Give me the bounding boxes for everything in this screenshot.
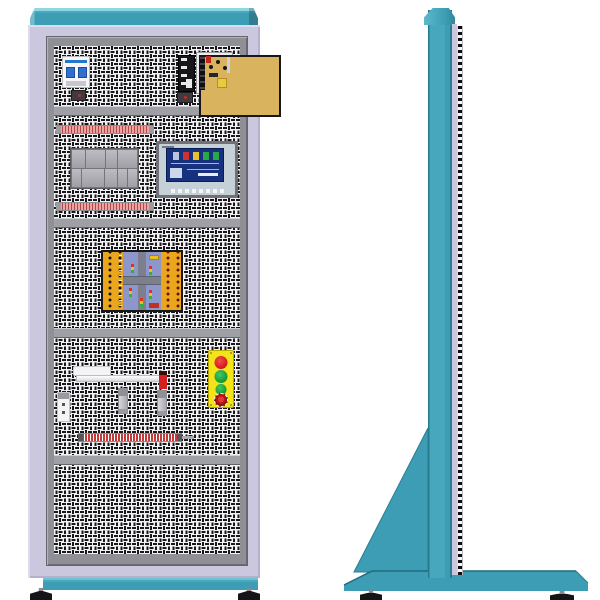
plc-module-row (72, 169, 137, 187)
hmi-tank-green (203, 152, 209, 160)
relay-label (186, 79, 192, 88)
sensor-head (119, 389, 127, 396)
sensor-base (119, 409, 127, 413)
plc-module (118, 169, 127, 187)
board-road-horizontal (123, 276, 161, 285)
hmi-screen (166, 148, 224, 182)
traffic-trainer-board (101, 250, 183, 312)
screw (230, 352, 232, 354)
board-socket-column-right (161, 252, 181, 310)
side-left-foot (360, 590, 382, 600)
side-column (428, 10, 452, 578)
plc-module-row (72, 150, 137, 168)
plc-module (86, 150, 105, 168)
board-brand-label (149, 303, 159, 308)
psu-capacitor (209, 65, 213, 69)
side-floor-base (344, 571, 588, 591)
board-socket-column-left (103, 252, 123, 310)
board-intersection-panel (123, 252, 161, 310)
hmi-tank-green (213, 152, 219, 160)
terminal-strip-lower (78, 433, 182, 442)
screw (210, 404, 212, 406)
breaker-toggle-2 (78, 67, 87, 78)
hmi-tank-gray (173, 152, 179, 160)
traffic-light (129, 288, 132, 297)
sensor-2 (157, 390, 167, 416)
screw (210, 352, 212, 354)
line-filter-relay (178, 55, 195, 92)
psu-warning-label (206, 56, 211, 63)
traffic-light (149, 266, 152, 275)
mesh-divider-2 (54, 218, 240, 228)
traffic-light (140, 298, 143, 307)
aux-widget-1 (71, 90, 86, 101)
side-support-gusset (354, 428, 428, 572)
terminal-strip-upper (56, 125, 154, 134)
hmi-tank-red (183, 152, 189, 160)
psu-terminal-block (200, 57, 205, 90)
hmi-button-bar (198, 173, 218, 176)
hmi-pipe (187, 169, 219, 170)
hmi-pipe (171, 163, 219, 164)
breaker-terminals (66, 81, 86, 86)
hmi-tank-yellow (193, 152, 199, 160)
breaker-label-band (65, 60, 87, 63)
mesh-divider-3 (54, 328, 240, 338)
limit-switch-hole (62, 403, 65, 406)
plc-module (118, 150, 137, 168)
traffic-light (149, 290, 152, 299)
limit-switch-hole (62, 411, 65, 414)
power-supply (196, 52, 233, 94)
breaker-toggle-1 (66, 67, 75, 78)
board-yellow-component (149, 255, 159, 260)
psu-heatsink (227, 57, 230, 73)
green-push-button (215, 370, 228, 383)
hmi-touch-panel (156, 141, 238, 198)
terminal-strip-middle (56, 202, 154, 211)
pneumatic-cylinder-rod (76, 375, 160, 382)
limit-switch (57, 392, 70, 422)
plc-module (72, 169, 81, 187)
red-indicator (159, 371, 167, 389)
terminal-strip-rail-tail (182, 436, 194, 439)
sensor-head (158, 391, 166, 398)
limit-switch-head (58, 393, 69, 399)
illustration-canvas (0, 0, 600, 600)
red-push-button (215, 356, 228, 369)
sensor-1 (118, 388, 128, 414)
front-top-cap (30, 8, 258, 25)
traffic-light (131, 264, 134, 273)
aux-widget-2 (177, 92, 193, 103)
side-right-foot (550, 591, 574, 600)
psu-ic-chip (209, 73, 218, 77)
side-vent-strip (457, 26, 463, 575)
circuit-breaker (62, 56, 90, 88)
widget-red-dot (78, 94, 81, 97)
plc-module (106, 150, 117, 168)
mesh-divider-4 (54, 455, 240, 465)
hmi-function-keys (171, 189, 227, 193)
sensor-base (158, 411, 166, 415)
red-indicator-cap (159, 371, 167, 375)
front-base-bar (43, 578, 258, 590)
emergency-stop-button (214, 393, 228, 407)
widget-red-dot (184, 96, 187, 99)
plc-module (128, 169, 137, 187)
plc-rack (70, 148, 139, 189)
hmi-subpanel (170, 168, 182, 178)
screw (230, 404, 232, 406)
psu-transformer (217, 78, 227, 88)
push-button-station (208, 350, 234, 408)
plc-module (105, 169, 116, 187)
board-socket-labels (119, 255, 122, 307)
plc-module (82, 169, 104, 187)
plc-module (72, 150, 85, 168)
side-base-bevel-edge (576, 571, 588, 583)
psu-capacitor (216, 60, 220, 64)
